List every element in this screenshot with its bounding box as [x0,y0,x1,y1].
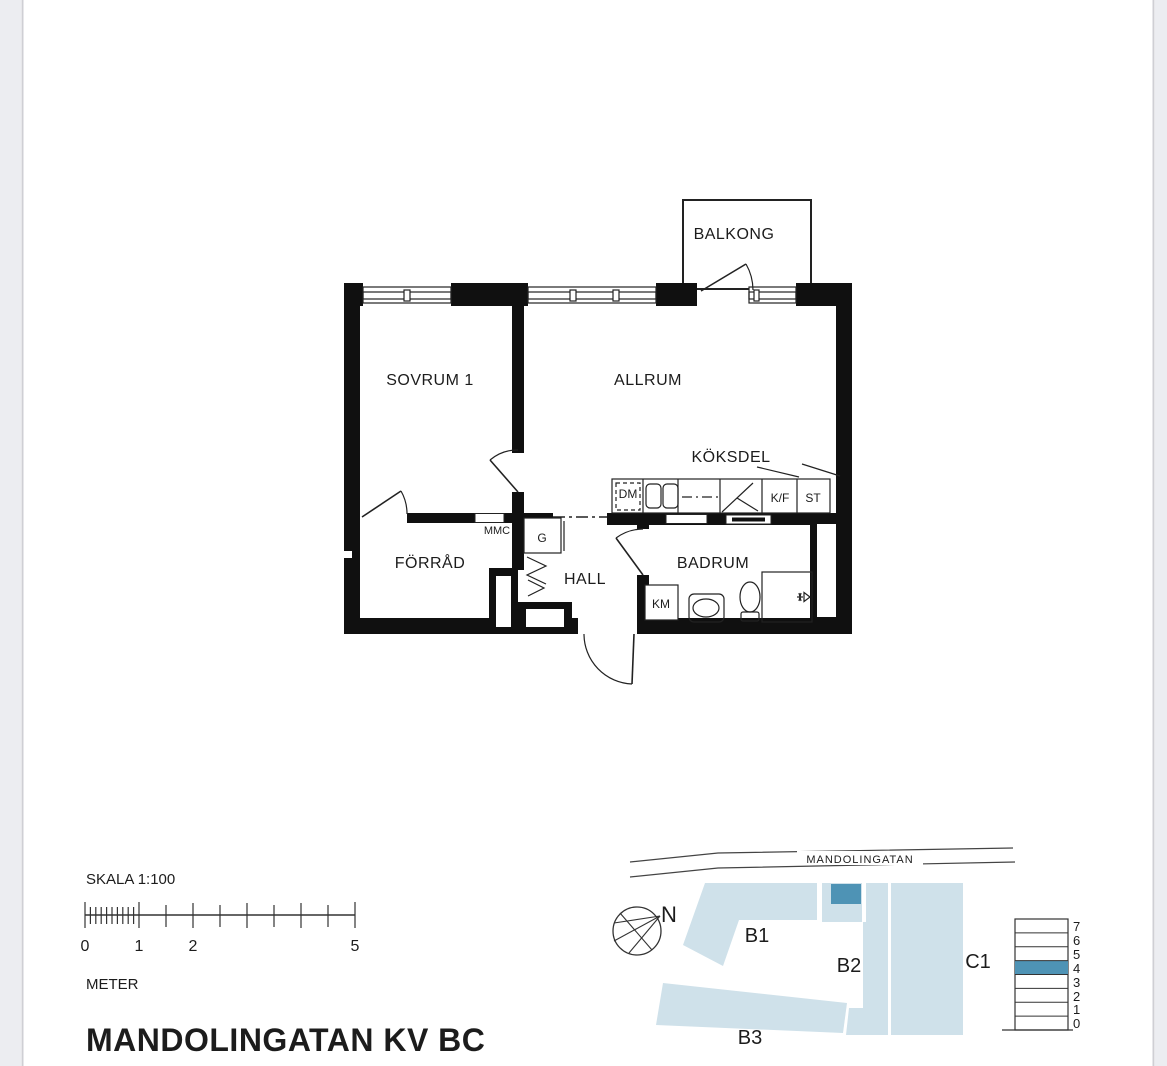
floor-label-3: 3 [1073,975,1080,990]
highlighted-unit [831,884,861,904]
wardrobe-label: G [537,531,546,545]
scale-unit: METER [86,976,139,993]
scale-tick-0: 0 [81,938,90,955]
document-title: MANDOLINGATAN KV BC [86,1022,485,1058]
document-page: BALKONG [0,0,1167,1066]
floor-label-7: 7 [1073,919,1080,934]
page-background [0,0,1167,1066]
street-name: MANDOLINGATAN [806,854,913,866]
livingroom-window [528,287,656,303]
highlighted-floor-row [1015,961,1068,975]
scale-title: SKALA 1:100 [86,871,175,888]
room-label-bedroom: SOVRUM 1 [386,372,474,389]
floor-label-5: 5 [1073,947,1080,962]
scale-tick-5: 5 [351,938,360,955]
room-label-hall: HALL [564,571,606,588]
mmc-hatch [475,514,504,523]
balcony-outline [683,200,811,289]
building-label-b2: B2 [837,955,861,977]
building-label-b1: B1 [745,925,769,947]
building-c1-shape [891,883,963,1035]
dishwasher-label: DM [619,487,638,501]
room-label-storage: FÖRRÅD [395,553,466,572]
right-gutter [1155,0,1167,1066]
left-gutter [0,0,21,1066]
wall-recess [344,551,352,558]
mmc-label: MMC [484,525,510,537]
building-label-c1: C1 [965,951,991,973]
washing-machine-label: KM [652,597,670,611]
balcony-window [749,287,796,303]
fridge-label: K/F [771,491,790,505]
floor-label-0: 0 [1073,1016,1080,1031]
scale-tick-1: 1 [135,938,144,955]
floor-label-4: 4 [1073,961,1080,976]
wardrobe: G [524,518,564,553]
bedroom-window [363,287,451,303]
room-label-kitchen: KÖKSDEL [691,448,770,466]
building-label-b3: B3 [738,1027,762,1049]
room-label-living: ALLRUM [614,372,682,389]
room-label-bathroom: BADRUM [677,555,749,572]
duct-shaft [817,524,836,617]
north-label: N [661,902,677,927]
floor-label-1: 1 [1073,1002,1080,1017]
tall-cabinet-label: ST [805,491,821,505]
floor-label-6: 6 [1073,933,1080,948]
room-label-balcony: BALKONG [694,226,775,243]
scale-tick-2: 2 [189,938,198,955]
